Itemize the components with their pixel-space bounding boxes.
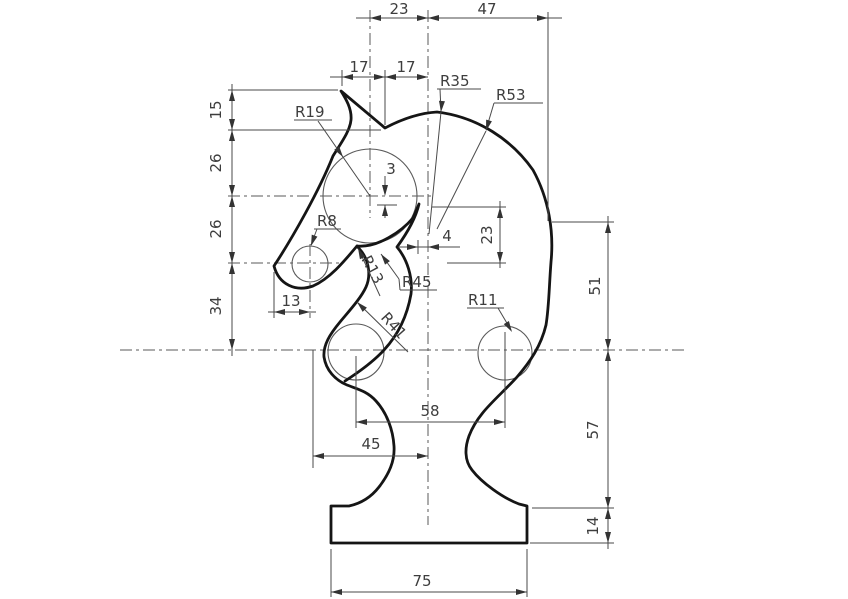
dimension-arrowhead — [229, 263, 235, 274]
dim-label-ear-17a: 17 — [349, 58, 368, 76]
dimension-arrowhead — [537, 15, 548, 21]
dimension-arrowhead — [428, 15, 439, 21]
knight-outline — [274, 91, 552, 543]
dimension-arrowhead — [382, 205, 388, 216]
leader-r53-extension — [437, 131, 486, 229]
dim-label-left-26b: 26 — [207, 219, 225, 238]
dim-label-eye-3: 3 — [386, 160, 396, 178]
dimension-arrowhead — [229, 130, 235, 141]
dimension-arrowhead — [381, 254, 390, 265]
construction-circles — [292, 149, 532, 380]
dim-label-throat-4: 4 — [442, 227, 452, 245]
dimension-arrowhead — [374, 74, 385, 80]
dimension-arrowhead — [229, 119, 235, 130]
dimension-arrowhead — [313, 453, 324, 459]
dim-label-top-23: 23 — [389, 0, 408, 18]
dim-label-left-34: 34 — [207, 296, 225, 315]
dimension-arrowhead — [229, 196, 235, 207]
dimension-arrowhead — [605, 508, 611, 519]
centerlines — [120, 10, 684, 525]
dimension-arrowhead — [497, 207, 503, 218]
dimension-arrowhead — [605, 497, 611, 508]
dim-label-left-26a: 26 — [207, 153, 225, 172]
radius-label-r53: R53 — [496, 86, 526, 104]
leader-r45-elbow — [399, 279, 400, 290]
dimension-arrowhead — [331, 589, 342, 595]
cad-drawing-canvas: 23 47 17 17 15 26 26 34 13 3 4 23 51 57 … — [0, 0, 848, 599]
dimension-arrowhead — [439, 101, 445, 112]
dimension-arrowhead — [417, 74, 428, 80]
dim-label-left-15: 15 — [207, 100, 225, 119]
knight-silhouette — [274, 91, 552, 543]
dim-label-ear-17b: 17 — [396, 58, 415, 76]
dim-label-75: 75 — [412, 572, 431, 590]
dimension-arrowhead — [229, 185, 235, 196]
dim-label-right-51: 51 — [586, 276, 604, 295]
leader-r35-extension — [429, 112, 441, 234]
dimension-arrowhead — [497, 252, 503, 263]
dimension-arrowhead — [356, 419, 367, 425]
dimension-arrowhead — [385, 74, 396, 80]
dimension-arrowhead — [516, 589, 527, 595]
dimension-arrowhead — [229, 252, 235, 263]
knight-cad-drawing: 23 47 17 17 15 26 26 34 13 3 4 23 51 57 … — [0, 0, 848, 599]
radius-label-r11: R11 — [468, 291, 498, 309]
dimension-arrowhead — [428, 244, 439, 250]
dimension-arrowhead — [229, 90, 235, 101]
dim-label-nose-13: 13 — [281, 292, 300, 310]
dimension-arrowhead — [417, 15, 428, 21]
dimension-arrowhead — [605, 350, 611, 361]
dim-label-mouth-23: 23 — [478, 225, 496, 244]
dim-label-right-57: 57 — [584, 420, 602, 439]
radius-label-r45: R45 — [402, 273, 432, 291]
dimension-arrowhead — [494, 419, 505, 425]
dim-label-45: 45 — [361, 435, 380, 453]
radius-label-r8: R8 — [317, 212, 337, 230]
leader-r19 — [318, 121, 370, 196]
dim-label-right-14: 14 — [584, 516, 602, 535]
dimension-arrowhead — [299, 309, 310, 315]
radius-label-r19: R19 — [295, 103, 325, 121]
dimension-arrowhead — [229, 339, 235, 350]
dim-label-top-47: 47 — [477, 0, 496, 18]
dimension-arrowhead — [605, 339, 611, 350]
dimension-labels: 23 47 17 17 15 26 26 34 13 3 4 23 51 57 … — [207, 0, 604, 590]
mouth-and-jaw-line — [345, 204, 419, 381]
radius-label-r35: R35 — [440, 72, 470, 90]
dimension-arrowhead — [605, 532, 611, 543]
dimension-arrowhead — [311, 235, 317, 246]
dimension-arrowhead — [605, 222, 611, 233]
dimension-arrowhead — [407, 244, 418, 250]
dimension-arrowhead — [370, 15, 381, 21]
dim-label-58: 58 — [420, 402, 439, 420]
dimension-arrowhead — [417, 453, 428, 459]
dimension-arrowhead — [382, 185, 388, 196]
